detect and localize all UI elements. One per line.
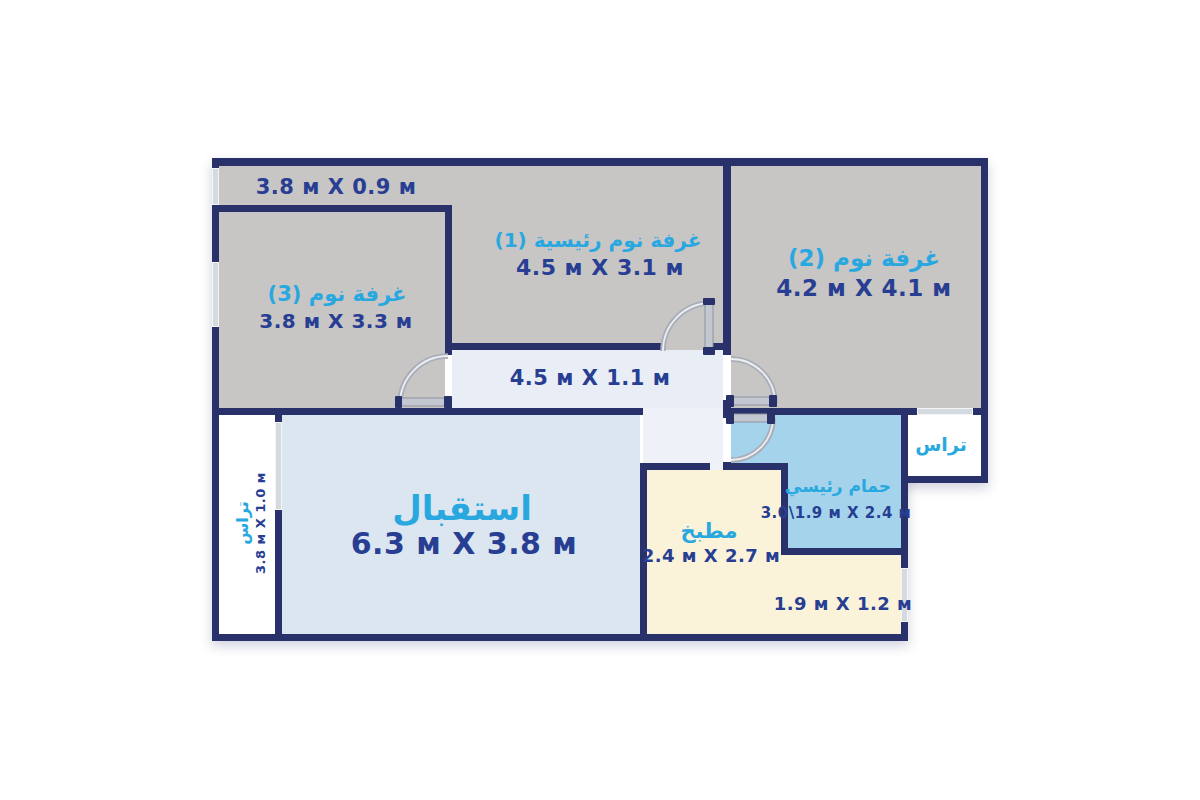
bedroom2-name-label: غرفة نوم (2) — [788, 246, 940, 271]
corridor-dims-label: 4.5 м X 1.1 м — [510, 367, 671, 390]
window-icon — [212, 168, 219, 205]
wall-segment — [723, 463, 788, 470]
terrace-left-label-group: تراس 3.8 м X 1.0 м — [233, 472, 269, 574]
wall-segment — [452, 343, 663, 350]
terrace-right-name-label: تراس — [915, 434, 967, 455]
bedroom1-name-label: غرفة نوم رئيسية (1) — [495, 229, 702, 251]
bedroom2-dims-label: 4.2 м X 4.1 м — [776, 276, 951, 301]
wall-segment — [445, 205, 452, 355]
kitchen-name-label: مطبخ — [680, 520, 737, 543]
floor-plan: 3.8 м X 0.9 м غرفة نوم (3) 3.8 м X 3.3 м… — [0, 0, 1200, 800]
terrace-left-dims-label: 3.8 м X 1.0 м — [253, 472, 269, 574]
bedroom3-dims-label: 3.8 м X 3.3 м — [259, 310, 412, 332]
wall-segment — [640, 463, 710, 470]
bathroom-dims-label: 3.0\1.9 м X 2.4 м — [761, 505, 912, 522]
reception-dims-label: 6.3 м X 3.8 м — [351, 527, 578, 560]
balcony-top-dims-label: 3.8 м X 0.9 м — [256, 176, 417, 199]
window-icon — [917, 408, 973, 415]
window-icon — [212, 262, 219, 327]
reception-name-label: استقبال — [392, 490, 532, 527]
terrace-left-name-label: تراس — [233, 472, 253, 574]
wall-segment — [212, 205, 452, 212]
nook-dims-label: 1.9 м X 1.2 м — [774, 594, 913, 614]
window-icon — [275, 422, 282, 510]
wall-segment — [212, 158, 988, 166]
wall-segment — [781, 548, 908, 555]
wall-segment — [212, 158, 219, 641]
wall-segment — [212, 634, 908, 641]
wall-segment — [723, 158, 731, 355]
bedroom3-name-label: غرفة نوم (3) — [268, 283, 407, 306]
bathroom-name-label: حمام رئيسي — [785, 477, 891, 496]
room-area-bathroom-upper — [731, 415, 901, 463]
wall-segment — [713, 343, 723, 350]
bedroom1-dims-label: 4.5 м X 3.1 м — [516, 256, 684, 280]
wall-segment — [981, 158, 988, 483]
room-area-hall — [643, 408, 723, 470]
wall-segment — [901, 476, 988, 483]
wall-segment — [723, 400, 731, 418]
kitchen-dims-label: 2.4 м X 2.7 м — [642, 546, 781, 566]
